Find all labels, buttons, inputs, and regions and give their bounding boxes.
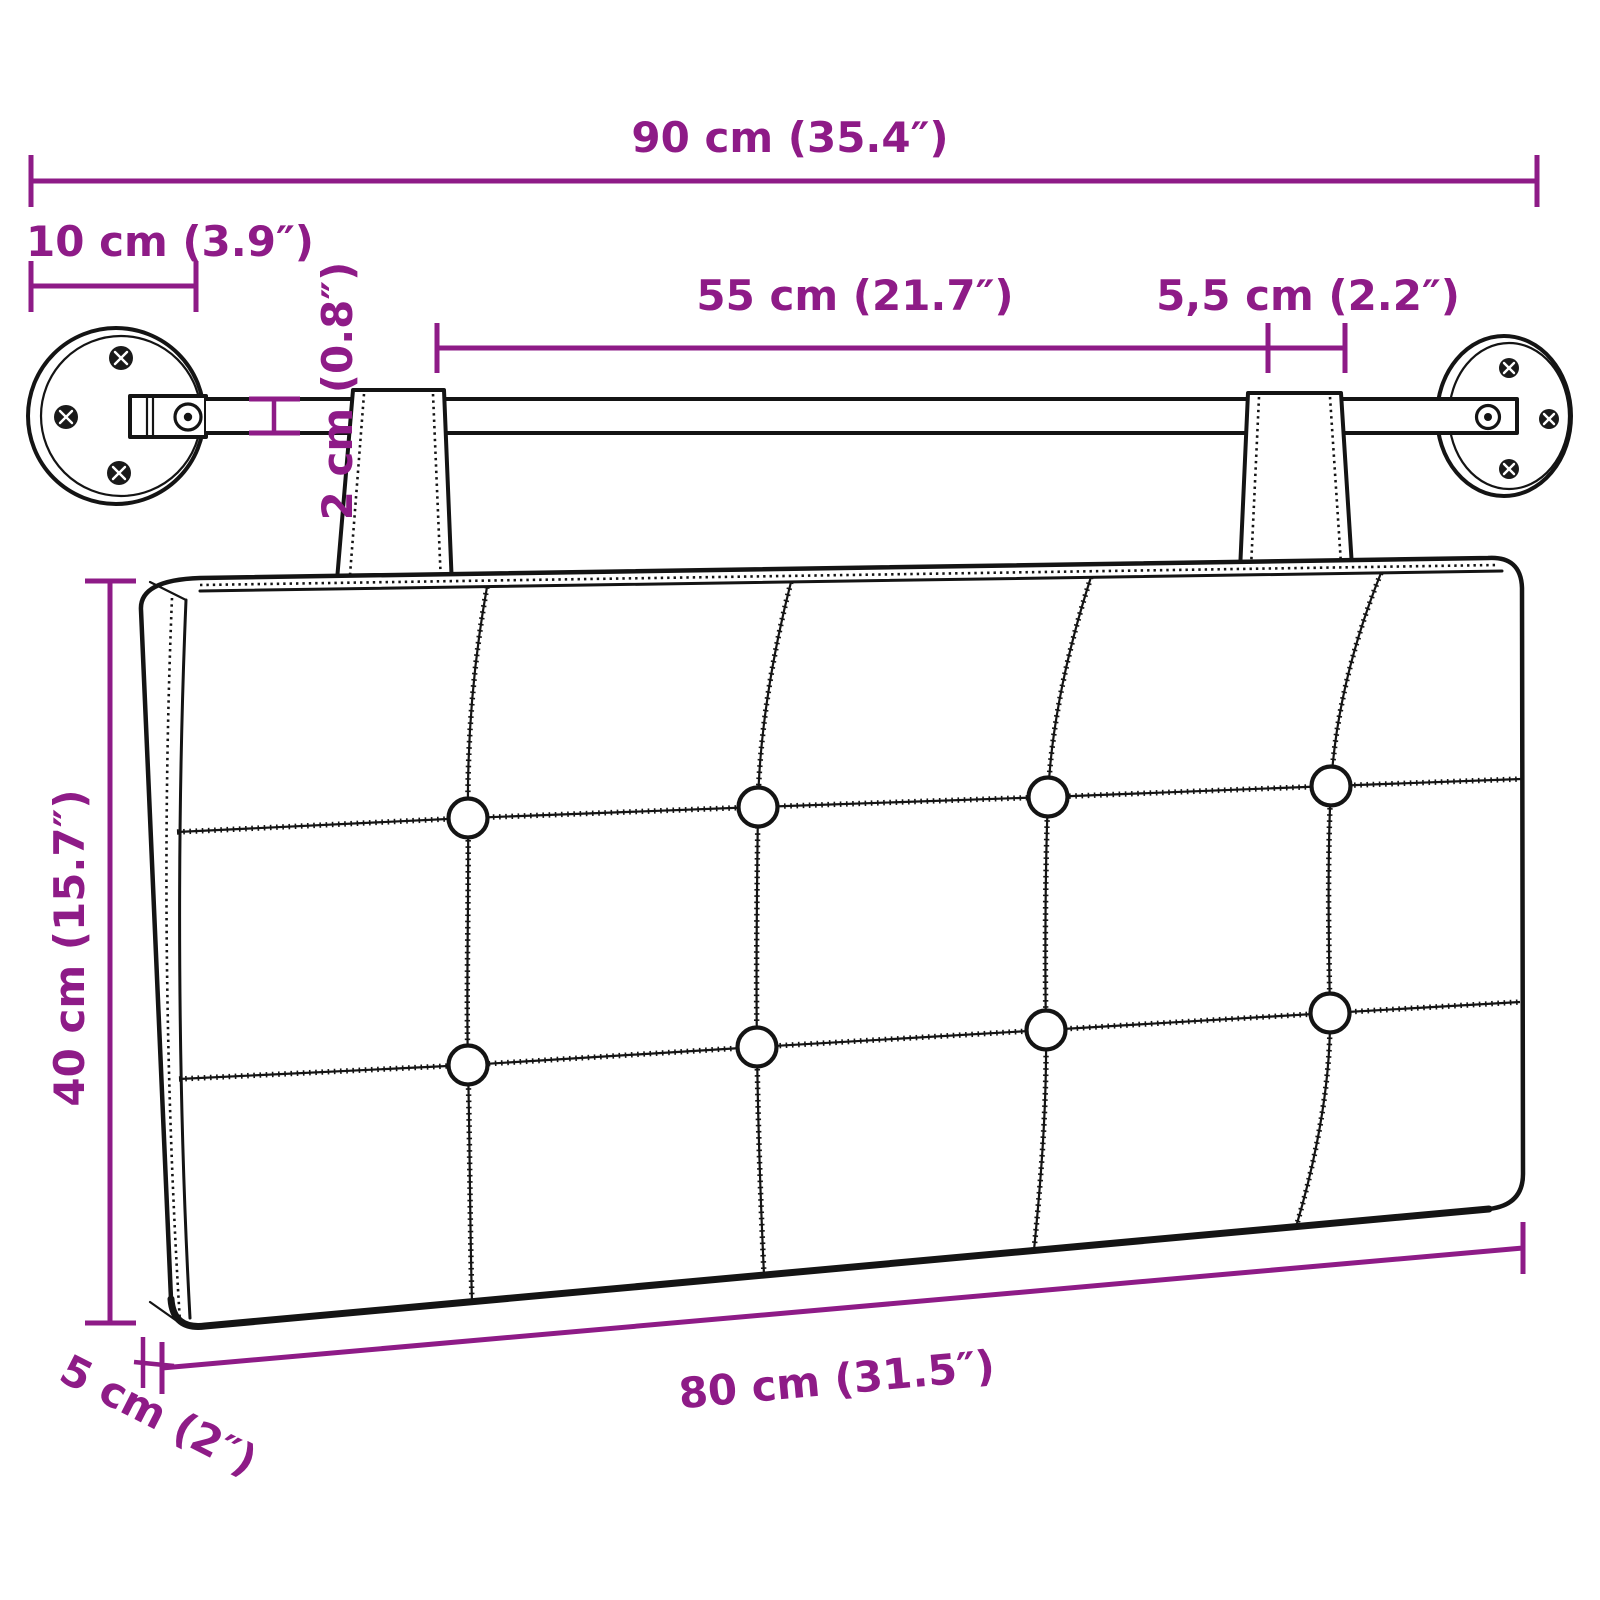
screw-icon: [54, 405, 78, 429]
dim-cushion-width-label: 80 cm (31.5″): [677, 1341, 997, 1419]
tuft-button: [1311, 994, 1350, 1033]
dim-height-label: 40 cm (15.7″): [45, 789, 94, 1106]
dim-strap-width: 5,5 cm (2.2″): [1156, 271, 1460, 373]
dim-strap-spacing-label: 55 cm (21.7″): [696, 271, 1013, 320]
dim-total-width: 90 cm (35.4″): [31, 113, 1537, 207]
tuft-button: [1029, 778, 1068, 817]
dim-mount-offset: 10 cm (3.9″): [26, 217, 314, 312]
tuft-button: [739, 788, 778, 827]
tuft-button: [449, 799, 488, 838]
screw-icon: [107, 461, 131, 485]
dim-rod-diameter: 2 cm (0.8″): [249, 262, 362, 521]
screw-icon: [109, 346, 133, 370]
tuft-button: [1027, 1011, 1066, 1050]
tuft-button: [738, 1028, 777, 1067]
headboard-cushion: [141, 558, 1523, 1327]
screw-icon: [1539, 409, 1559, 429]
hanging-strap-right: [1240, 393, 1352, 571]
cushion-outline: [141, 558, 1523, 1327]
pivot-screw-right: [1477, 406, 1500, 429]
pivot-screw-left-center: [184, 413, 192, 421]
tuft-button: [1312, 767, 1351, 806]
dim-strap-width-label: 5,5 cm (2.2″): [1156, 271, 1460, 320]
dim-rod-diameter-label: 2 cm (0.8″): [313, 262, 362, 521]
headboard-dimension-diagram: 90 cm (35.4″) 10 cm (3.9″) 55 cm (21.7″)…: [0, 0, 1600, 1600]
diagram-svg: 90 cm (35.4″) 10 cm (3.9″) 55 cm (21.7″)…: [0, 0, 1600, 1600]
dim-height: 40 cm (15.7″): [45, 581, 136, 1323]
dim-mount-offset-label: 10 cm (3.9″): [26, 217, 314, 266]
screw-icon: [1499, 358, 1519, 378]
dim-strap-spacing: 55 cm (21.7″): [437, 271, 1268, 373]
tuft-button: [449, 1046, 488, 1085]
dim-total-width-label: 90 cm (35.4″): [631, 113, 948, 162]
screw-icon: [1499, 459, 1519, 479]
